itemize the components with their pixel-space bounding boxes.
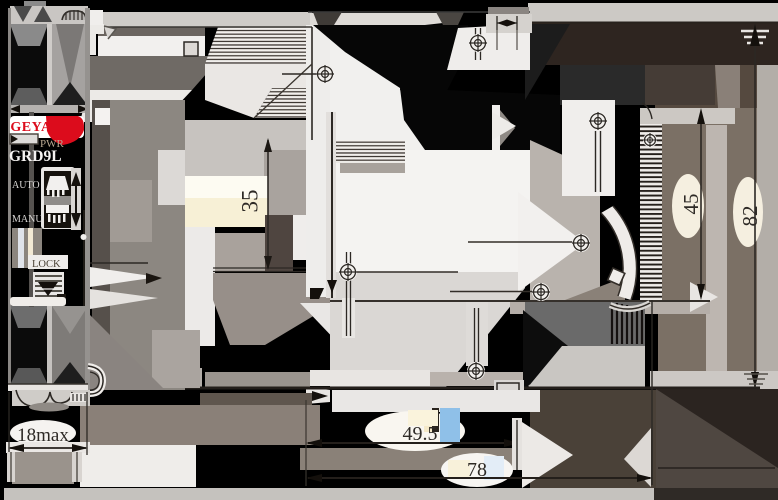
svg-text:35: 35 — [237, 190, 262, 213]
svg-text:45: 45 — [679, 194, 703, 215]
svg-text:82: 82 — [738, 206, 762, 227]
svg-text:GRD9L: GRD9L — [9, 148, 62, 165]
svg-text:78: 78 — [467, 459, 487, 481]
svg-text:49.5: 49.5 — [403, 423, 438, 445]
svg-text:MANU: MANU — [12, 214, 43, 225]
svg-text:GEYA: GEYA — [10, 120, 52, 135]
svg-text:LOCK: LOCK — [32, 259, 61, 270]
svg-text:AUTO: AUTO — [12, 180, 40, 191]
